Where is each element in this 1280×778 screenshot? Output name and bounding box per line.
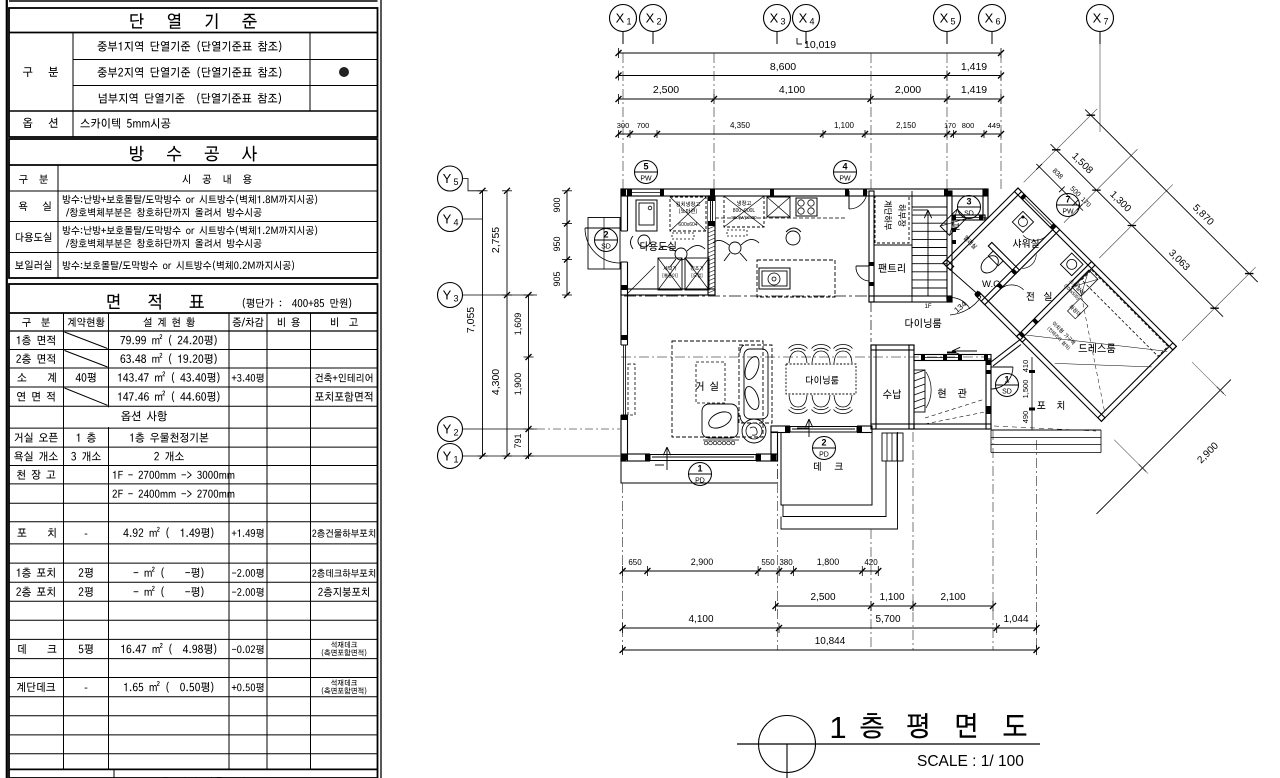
- svg-text:X: X: [1093, 11, 1102, 26]
- svg-text:4,300: 4,300: [490, 369, 502, 395]
- svg-text:134: 134: [952, 299, 968, 315]
- svg-text:800: 800: [962, 121, 975, 130]
- svg-text:X: X: [616, 11, 625, 26]
- svg-text:950: 950: [552, 236, 562, 251]
- svg-text:5,700: 5,700: [875, 614, 900, 625]
- svg-text:170: 170: [1079, 196, 1092, 209]
- svg-text:900: 900: [552, 197, 562, 212]
- svg-text:X: X: [985, 11, 994, 26]
- svg-text:X: X: [799, 11, 808, 26]
- svg-text:Y: Y: [443, 212, 452, 227]
- svg-text:490: 490: [1021, 411, 1030, 424]
- svg-text:1,419: 1,419: [961, 84, 987, 96]
- svg-text:4,100: 4,100: [779, 84, 805, 96]
- svg-text:550: 550: [761, 558, 775, 567]
- svg-text:838: 838: [1051, 168, 1064, 181]
- svg-text:600x604: 600x604: [678, 222, 697, 228]
- svg-text:7: 7: [1103, 17, 1108, 27]
- svg-text:449: 449: [988, 121, 1001, 130]
- svg-text:-: -: [84, 682, 88, 694]
- svg-text:PW: PW: [839, 176, 851, 183]
- svg-text:905: 905: [552, 271, 562, 286]
- svg-text:800~900L: 800~900L: [733, 208, 756, 214]
- svg-text:1: 1: [829, 710, 846, 745]
- svg-text:3: 3: [780, 17, 785, 27]
- svg-text:1,100: 1,100: [879, 592, 904, 603]
- svg-text:-: -: [84, 528, 88, 540]
- svg-text:8,600: 8,600: [770, 61, 796, 73]
- svg-text:7: 7: [1065, 195, 1070, 205]
- svg-text:4,100: 4,100: [688, 614, 713, 625]
- svg-text:5: 5: [453, 177, 458, 187]
- svg-text:380: 380: [779, 558, 793, 567]
- svg-text:2: 2: [453, 428, 458, 438]
- svg-text:2,755: 2,755: [490, 227, 502, 253]
- svg-text:SD: SD: [964, 211, 974, 218]
- svg-text:4: 4: [809, 17, 814, 27]
- svg-text:PW: PW: [640, 176, 652, 183]
- svg-text:4: 4: [842, 162, 847, 172]
- svg-text:1: 1: [453, 455, 458, 465]
- svg-text:1,500: 1,500: [1021, 380, 1030, 399]
- svg-text:5: 5: [950, 17, 955, 27]
- svg-text:1,044: 1,044: [1003, 614, 1028, 625]
- svg-text:650: 650: [628, 558, 642, 567]
- svg-text:1: 1: [697, 464, 702, 474]
- svg-text:10,844: 10,844: [815, 636, 846, 647]
- svg-text:4: 4: [453, 218, 458, 228]
- svg-text:X: X: [940, 11, 949, 26]
- svg-text:2,500: 2,500: [810, 592, 835, 603]
- svg-text:1: 1: [626, 17, 631, 27]
- svg-text:1,609: 1,609: [513, 313, 523, 336]
- svg-text:SD: SD: [601, 244, 611, 251]
- svg-text:X: X: [646, 11, 655, 26]
- svg-text:2,100: 2,100: [940, 592, 965, 603]
- svg-text:7,055: 7,055: [465, 307, 477, 333]
- svg-text:2: 2: [821, 438, 826, 448]
- svg-text:PD: PD: [695, 478, 705, 485]
- svg-text:6: 6: [995, 17, 1000, 27]
- svg-text:1,300: 1,300: [1107, 189, 1133, 215]
- svg-text:10,019: 10,019: [804, 39, 836, 51]
- svg-text:850(W)X800: 850(W)X800: [731, 215, 757, 220]
- svg-text:410: 410: [1021, 360, 1030, 373]
- svg-text:3: 3: [966, 197, 971, 207]
- svg-text:1,419: 1,419: [961, 61, 987, 73]
- svg-text:Y: Y: [443, 171, 452, 186]
- svg-text:W.C: W.C: [982, 279, 1000, 290]
- svg-text:5,870: 5,870: [1190, 202, 1216, 228]
- svg-text:1: 1: [1004, 375, 1009, 385]
- svg-text:Y: Y: [443, 449, 452, 464]
- svg-text:PD: PD: [819, 452, 829, 459]
- svg-text:PW: PW: [1062, 209, 1074, 216]
- svg-text:SCALE : 1/ 100: SCALE : 1/ 100: [917, 753, 1024, 770]
- svg-text:170: 170: [944, 123, 956, 130]
- svg-text:791: 791: [513, 433, 523, 448]
- svg-text:1,800: 1,800: [817, 557, 840, 567]
- svg-text:5: 5: [643, 162, 648, 172]
- svg-text:4,350: 4,350: [730, 121, 751, 130]
- svg-text:1,900: 1,900: [513, 373, 523, 396]
- svg-text:700: 700: [637, 121, 650, 130]
- svg-text:2: 2: [603, 230, 608, 240]
- svg-text:SD: SD: [1002, 389, 1012, 396]
- svg-text:1,100: 1,100: [834, 121, 855, 130]
- svg-text:420: 420: [864, 558, 878, 567]
- svg-text:2,000: 2,000: [895, 84, 921, 96]
- svg-text:3,063: 3,063: [1166, 248, 1192, 274]
- svg-text:2,900: 2,900: [1195, 440, 1221, 466]
- svg-text:2,900: 2,900: [691, 557, 714, 567]
- svg-text:2,500: 2,500: [653, 84, 679, 96]
- svg-text:1F: 1F: [924, 304, 931, 310]
- svg-text:Y: Y: [443, 288, 452, 303]
- svg-text:Y: Y: [443, 422, 452, 437]
- svg-text:X: X: [770, 11, 779, 26]
- svg-text:3: 3: [453, 294, 458, 304]
- svg-text:2,150: 2,150: [896, 121, 917, 130]
- svg-text:2: 2: [656, 17, 661, 27]
- svg-text:1,508: 1,508: [1069, 151, 1095, 177]
